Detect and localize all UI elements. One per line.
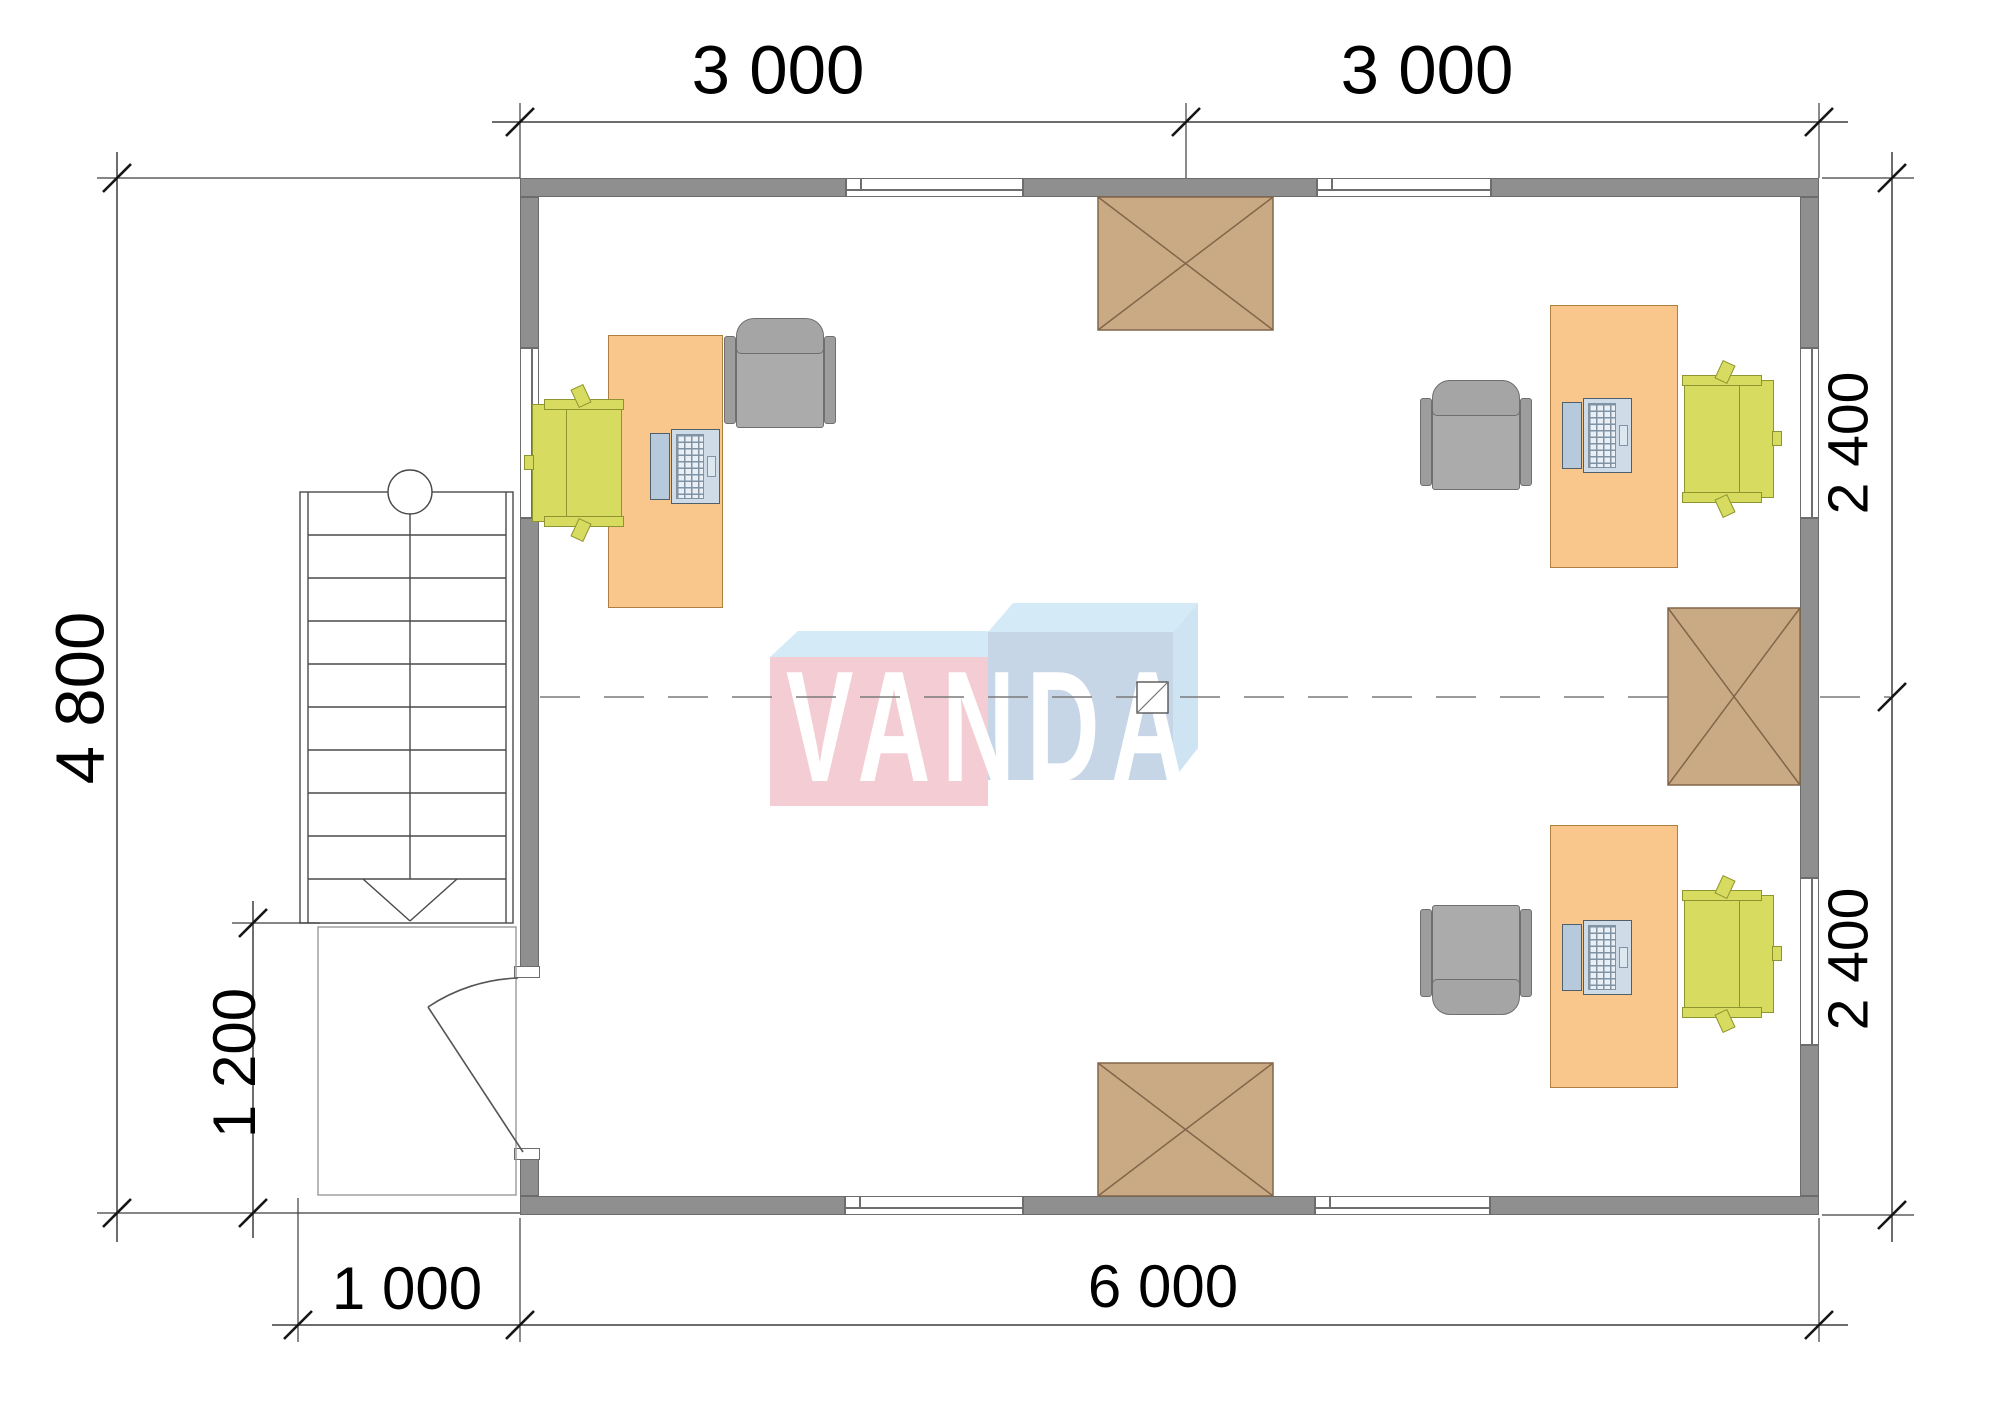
axis-marker <box>1137 682 1168 713</box>
office-chair-green <box>1682 890 1778 1018</box>
column-bottom-center <box>1098 1063 1273 1196</box>
chair-back <box>736 318 824 354</box>
chair-armrest <box>824 336 836 424</box>
chair-knob <box>1772 431 1782 446</box>
laptop-trackpad <box>1619 425 1628 446</box>
laptop-screen <box>650 433 670 500</box>
door-swing <box>428 978 523 1152</box>
laptop-keyboard <box>1588 925 1616 990</box>
floor-plan: VANDA <box>0 0 2000 1410</box>
office-chair-green <box>1682 375 1778 503</box>
chair-back <box>1739 380 1774 498</box>
office-chair-gray <box>1420 380 1532 494</box>
dim-label-left-overall: 4 800 <box>46 612 115 785</box>
chair-back <box>532 404 567 522</box>
dim-label-right-upper: 2 400 <box>1821 372 1878 515</box>
chair-seat <box>1684 899 1740 1009</box>
office-chair-gray <box>1420 901 1532 1015</box>
laptop-keyboard <box>676 434 704 499</box>
chair-seat <box>1684 384 1740 494</box>
laptop-top-right <box>1562 398 1632 473</box>
chair-armrest <box>1420 909 1432 997</box>
stair-column-symbol <box>388 470 432 514</box>
laptop-top-left <box>650 429 720 504</box>
laptop-bottom-right <box>1562 920 1632 995</box>
staircase <box>300 470 513 923</box>
laptop-keyboard <box>1588 403 1616 468</box>
chair-back <box>1432 380 1520 416</box>
office-chair-gray <box>724 318 836 432</box>
entry-porch <box>318 927 516 1195</box>
chair-back <box>1432 979 1520 1015</box>
chair-seat <box>566 408 622 518</box>
chair-armrest <box>1520 398 1532 486</box>
column-right-middle <box>1668 608 1800 785</box>
laptop-screen <box>1562 924 1582 991</box>
dim-label-bottom-overall: 6 000 <box>1088 1257 1238 1317</box>
dim-label-top-left: 3 000 <box>692 36 865 105</box>
chair-armrest <box>724 336 736 424</box>
laptop-screen <box>1562 402 1582 469</box>
dim-label-top-right: 3 000 <box>1341 36 1514 105</box>
chair-back <box>1739 895 1774 1013</box>
chair-knob <box>524 455 534 470</box>
door-leaf <box>428 1007 523 1152</box>
laptop-trackpad <box>1619 947 1628 968</box>
laptop-trackpad <box>707 456 716 477</box>
chair-armrest <box>1520 909 1532 997</box>
chair-knob <box>1772 946 1782 961</box>
dim-label-right-lower: 2 400 <box>1821 888 1878 1031</box>
dim-label-porch-height: 1 200 <box>205 988 265 1138</box>
dim-label-porch-width: 1 000 <box>332 1259 482 1319</box>
plan-linework <box>0 0 2000 1410</box>
column-top-center <box>1098 197 1273 330</box>
office-chair-green <box>528 399 624 527</box>
chair-armrest <box>1420 398 1432 486</box>
door-arc <box>428 978 518 1007</box>
